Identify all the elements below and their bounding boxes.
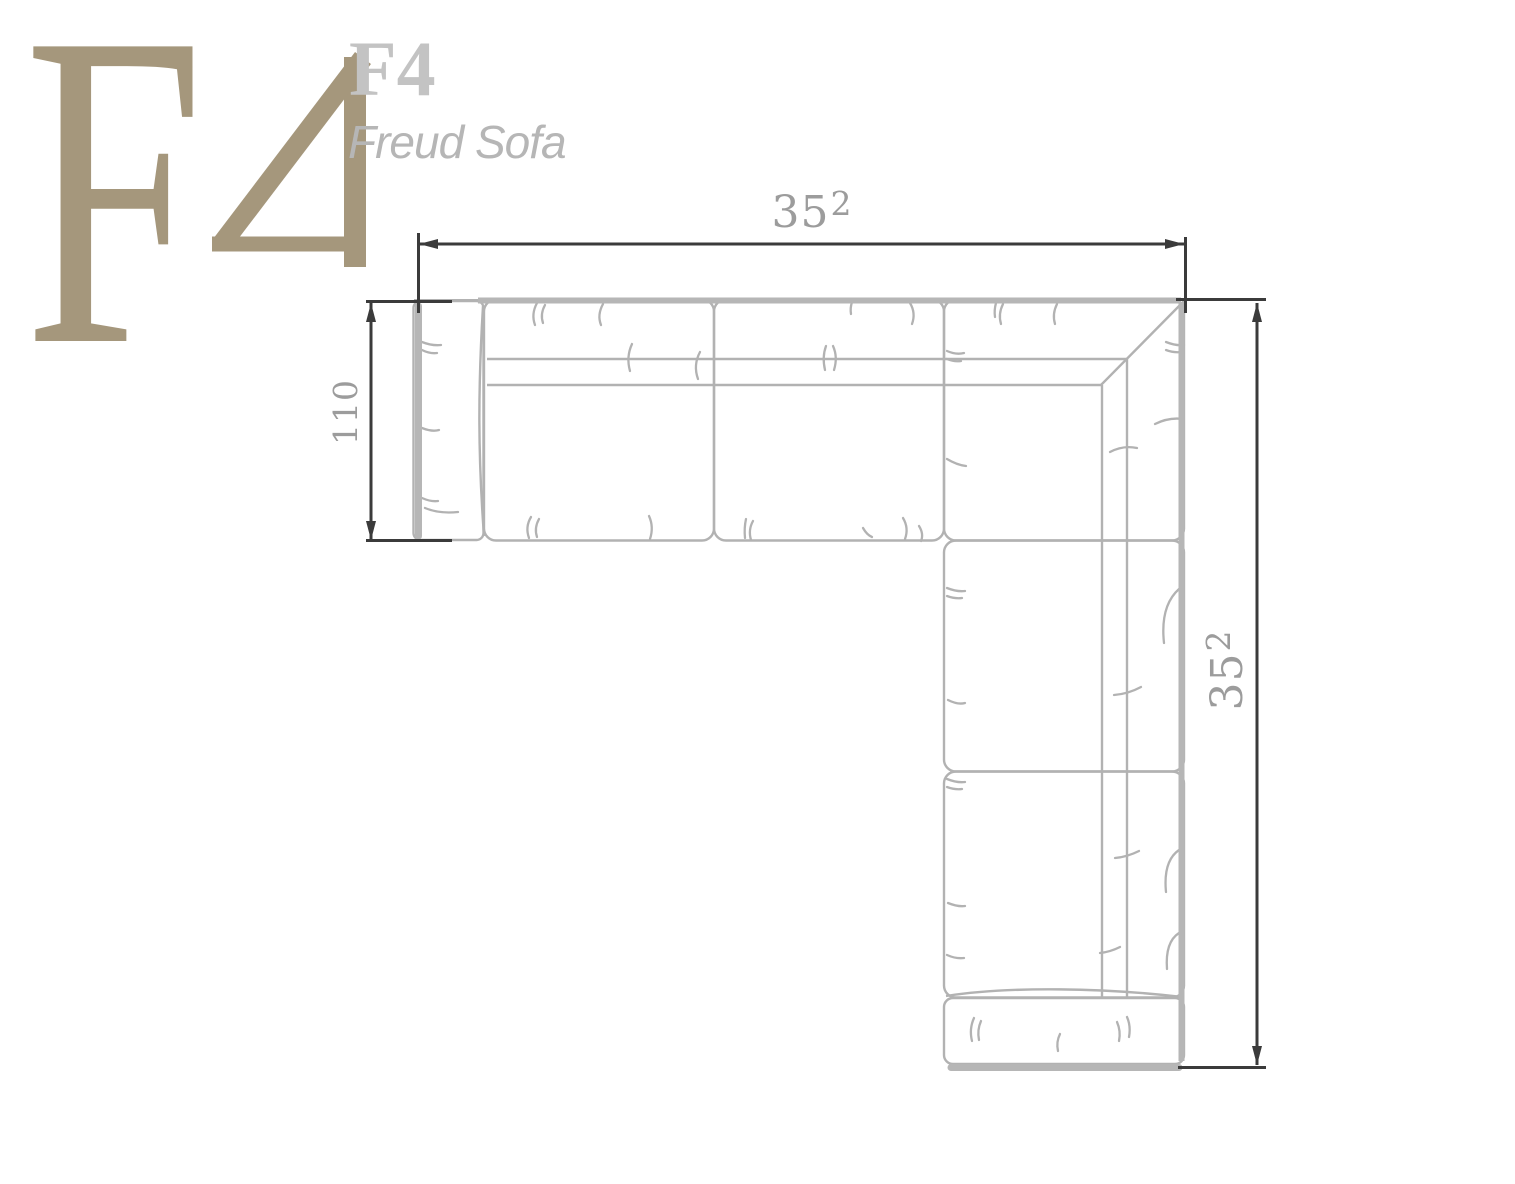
height-value-oldstyle-digit: 2: [1202, 630, 1235, 652]
wrinkle: [422, 342, 441, 345]
left-armrest: [414, 301, 484, 540]
wrinkle: [995, 303, 996, 317]
wrinkle: [947, 787, 962, 789]
seat-cushion-4: [944, 772, 1184, 998]
wrinkle: [536, 519, 539, 537]
wrinkle: [628, 344, 632, 371]
wrinkle: [863, 528, 872, 537]
arrowhead-left-icon: [419, 239, 438, 249]
arrowhead-up-icon: [366, 303, 376, 322]
wrinkle: [649, 516, 652, 539]
wrinkle: [910, 303, 914, 324]
arrowhead-down-icon: [1252, 1046, 1262, 1065]
arrowhead-down-icon: [366, 521, 376, 540]
wrinkle: [425, 508, 458, 513]
wrinkle: [1127, 1017, 1130, 1037]
corner-section: [944, 300, 1184, 541]
wrinkle: [919, 526, 922, 541]
wrinkle: [422, 350, 437, 353]
seat-front-arc: [946, 989, 1182, 997]
wrinkle: [422, 428, 439, 431]
wrinkle: [947, 351, 964, 354]
wrinkle: [533, 303, 537, 325]
wrinkle: [542, 305, 545, 323]
height-value: 35: [1206, 653, 1250, 711]
wrinkle: [1057, 1034, 1060, 1051]
bottom-armrest: [944, 998, 1184, 1064]
wrinkle: [947, 588, 965, 591]
height-dimension-label: 352: [1197, 598, 1259, 742]
fabric-wrinkles: [422, 302, 1184, 1051]
width-dimension-label: 352: [700, 184, 924, 242]
wrinkle: [971, 1018, 974, 1041]
wrinkle: [1110, 447, 1137, 452]
wrinkle: [696, 352, 700, 379]
silhouette-heavy-strokes: [414, 301, 1182, 1068]
wrinkle: [947, 955, 964, 958]
wrinkle: [1166, 850, 1179, 892]
wrinkle: [948, 700, 965, 704]
wrinkle: [527, 517, 531, 538]
sofa-technical-drawing: [0, 0, 1515, 1184]
depth-dimension-label: 110: [314, 350, 376, 474]
width-value: 35: [772, 191, 830, 235]
wrinkle: [1000, 304, 1003, 324]
depth-value: 110: [329, 379, 362, 445]
wrinkle: [1054, 304, 1057, 324]
wrinkle: [903, 518, 907, 539]
wrinkle: [948, 903, 965, 906]
wrinkle: [947, 596, 962, 598]
wrinkle: [851, 302, 852, 314]
sofa-outline: [414, 300, 1185, 1065]
wrinkle: [422, 498, 438, 501]
wrinkle: [1163, 589, 1179, 643]
wrinkle: [599, 304, 603, 325]
seat-cushion-1: [484, 300, 714, 541]
wrinkle: [745, 519, 746, 538]
wrinkle: [1117, 1022, 1120, 1041]
width-value-oldstyle-digit: 2: [831, 187, 853, 220]
seat-cushion-3: [944, 541, 1184, 772]
wrinkle: [978, 1021, 981, 1040]
arrowhead-right-icon: [1165, 239, 1184, 249]
wrinkle: [750, 521, 753, 540]
wrinkle: [947, 459, 966, 466]
wrinkle: [947, 779, 965, 782]
backrest-lines: [479, 301, 1184, 998]
seat-cushion-2: [714, 300, 944, 541]
arrowhead-up-icon: [1252, 303, 1262, 322]
wrinkle: [1167, 933, 1179, 969]
